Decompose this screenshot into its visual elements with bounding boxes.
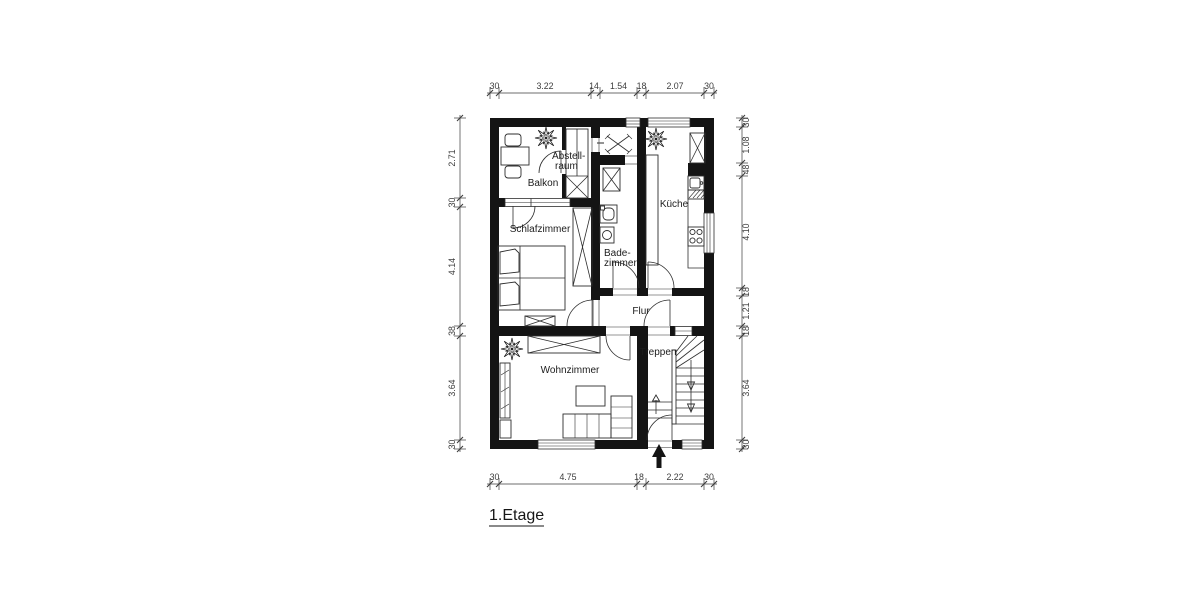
toilet [600, 227, 614, 243]
dim-right-4: 18 [741, 287, 751, 297]
dim-right-6: 18 [741, 326, 751, 336]
armchair [500, 420, 511, 438]
bookshelf [500, 363, 510, 418]
dim-bottom-2: 18 [634, 472, 644, 482]
dim-right-2: 48 [741, 165, 751, 175]
washbasin [600, 205, 617, 223]
balcony-table [501, 147, 529, 165]
plant-icon [645, 128, 667, 150]
window-treppen-south [682, 440, 702, 449]
dim-left-2: 4.14 [447, 258, 457, 275]
dim-top-1: 3.22 [536, 81, 553, 91]
door-schlafzimmer-flur [567, 300, 593, 326]
kitchen-dishwasher [688, 190, 704, 199]
window-top-kueche [648, 118, 690, 127]
window-balcony-door-band [505, 199, 570, 207]
shower-cabinet [603, 168, 620, 191]
kitchen-counter-left [646, 155, 658, 265]
dim-bottom-0: 30 [490, 472, 500, 482]
window-flur-treppen [675, 327, 692, 336]
dim-right-5: 1.21 [741, 302, 751, 319]
door-entrance [647, 415, 672, 440]
dimension-left: 2.71 30 4.14 38 3.64 30 [447, 115, 466, 452]
dimension-bottom: 30 4.75 18 2.22 30 [487, 472, 717, 490]
dimension-right: 30 1.08 48 4.10 18 1.21 18 3.64 30 [736, 115, 751, 452]
furniture-wohnzimmer [500, 336, 632, 438]
dim-top-0: 30 [490, 81, 500, 91]
kitchen-sink [688, 176, 704, 190]
kitchen-fridge-cabinet [690, 133, 705, 163]
dim-left-0: 2.71 [447, 149, 457, 166]
dimension-top: 30 3.22 14 1.54 18 2.07 30 [487, 81, 717, 99]
window-kueche-right [704, 213, 714, 253]
dim-top-4: 18 [637, 81, 647, 91]
page-title: 1.Etage [489, 507, 544, 524]
room-label-treppen: Treppen [640, 347, 677, 358]
furniture-kueche [645, 128, 705, 268]
room-label-balkon: Balkon [528, 178, 559, 189]
dim-top-6: 30 [704, 81, 714, 91]
dim-left-4: 3.64 [447, 379, 457, 396]
room-label-wohnzimmer: Wohnzimmer [541, 365, 600, 376]
wardrobe [573, 208, 592, 286]
dim-left-3: 38 [447, 326, 457, 336]
dim-left-1: 30 [447, 198, 457, 208]
double-bed [498, 246, 565, 310]
coffee-table [576, 386, 605, 406]
room-label-abstellraum-line2: raum [555, 161, 578, 172]
furniture-balkon [501, 127, 557, 178]
dim-left-5: 30 [447, 440, 457, 450]
low-cabinet [525, 316, 555, 326]
dim-right-7: 3.64 [741, 379, 751, 396]
balcony-chair-top [505, 134, 521, 146]
kitchen-stove [688, 227, 704, 246]
door-kueche [648, 262, 674, 288]
sideboard [528, 336, 600, 353]
dim-right-1: 1.08 [741, 136, 751, 153]
dim-top-2: 14 [589, 81, 599, 91]
dim-bottom-4: 30 [704, 472, 714, 482]
dim-right-0: 30 [741, 118, 751, 128]
dim-bottom-3: 2.22 [666, 472, 683, 482]
dim-top-3: 1.54 [610, 81, 627, 91]
dim-right-8: 30 [741, 440, 751, 450]
floor-plan-drawing: Balkon Abstell- raum Schlafzimmer Bade- … [0, 0, 1200, 600]
room-label-flur: Flur [632, 306, 650, 317]
balcony-chair-bottom [505, 166, 521, 178]
room-label-kueche: Küche [660, 199, 689, 210]
furniture-badezimmer [600, 168, 620, 243]
ceiling-lamp-icon [605, 134, 632, 154]
room-label-schlafzimmer: Schlafzimmer [510, 224, 571, 235]
plant-icon [501, 338, 523, 360]
walls [490, 118, 714, 449]
floor-plan-page: Balkon Abstell- raum Schlafzimmer Bade- … [0, 0, 1200, 600]
dim-right-3: 4.10 [741, 223, 751, 240]
window-wohnzimmer-south [538, 440, 595, 449]
room-label-badezimmer-line2: zimmer [604, 258, 637, 269]
stair-stringer [672, 350, 676, 424]
window-top-vestibule [626, 118, 640, 127]
sofa [563, 396, 632, 438]
stair-direction-arrow-up [653, 395, 660, 414]
drawing-title: 1.Etage [489, 507, 544, 526]
dim-bottom-1: 4.75 [559, 472, 576, 482]
plant-icon [535, 127, 557, 149]
door-wohnzimmer [606, 336, 630, 360]
dim-top-5: 2.07 [666, 81, 683, 91]
